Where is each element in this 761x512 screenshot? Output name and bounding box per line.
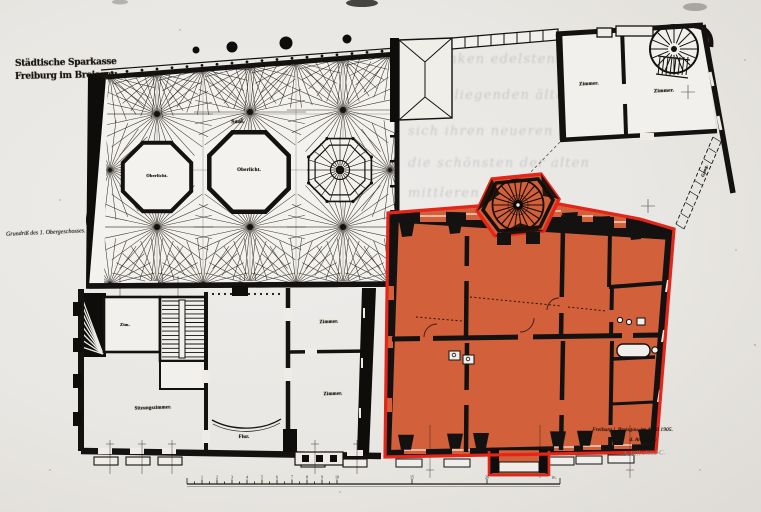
left-wing	[73, 276, 397, 474]
svg-text:15: 15	[410, 475, 414, 480]
svg-text:m.: m.	[552, 475, 557, 480]
svg-text:3: 3	[231, 475, 233, 480]
svg-text:2: 2	[216, 475, 218, 480]
svg-text:4: 4	[246, 475, 248, 480]
svg-text:7: 7	[291, 475, 293, 480]
room-label-flur: Flur.	[229, 435, 259, 440]
svg-text:6: 6	[276, 475, 278, 480]
title-line1: Städtische Sparkasse	[15, 57, 111, 70]
svg-text:10: 10	[335, 475, 339, 480]
octagon1-label: Oberlicht.	[134, 173, 180, 178]
room-label-zim: Zim.	[120, 322, 130, 327]
scanned-floor-plan-page: schlanken edelstennebenliegenden älteren…	[0, 0, 761, 512]
svg-text:20: 20	[485, 475, 489, 480]
svg-text:5: 5	[261, 475, 263, 480]
hall-ink-blobs	[193, 35, 352, 54]
title-line2: Freiburg im Breisgau.	[15, 70, 111, 83]
octagon2-label: Oberlicht.	[226, 168, 272, 173]
gang-corridor	[676, 137, 721, 229]
scan-smudges	[112, 0, 707, 11]
svg-text:1: 1	[201, 475, 203, 480]
signature: A. Hillschied-C.	[623, 449, 665, 457]
architect-note: d. Architekt:	[629, 437, 657, 443]
svg-text:9: 9	[321, 475, 323, 480]
svg-text:8: 8	[306, 475, 308, 480]
roof-building	[390, 29, 558, 122]
date-note: Freiburg i. Breisgau, im April 1905.	[592, 427, 673, 433]
